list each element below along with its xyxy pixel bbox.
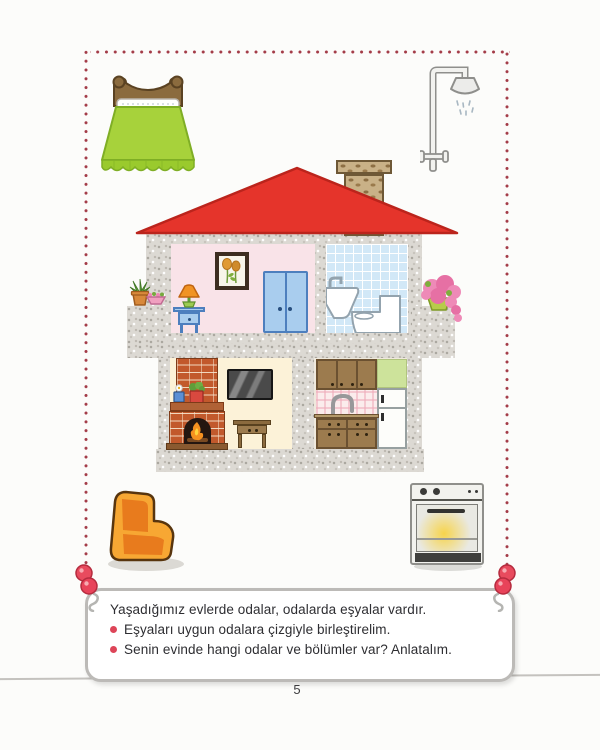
wardrobe-knob bbox=[288, 307, 292, 311]
washbasin-faucet-icon bbox=[330, 278, 341, 288]
berry-decoration-left bbox=[72, 562, 104, 612]
house-floor-slab bbox=[127, 344, 455, 358]
instruction-bullet-1: Eşyaları uygun odalara çizgiyle birleşti… bbox=[124, 622, 390, 637]
pink-flower-bowl bbox=[146, 291, 166, 306]
mantel-plants bbox=[172, 382, 206, 404]
wall-tv bbox=[227, 369, 273, 400]
bed-post-knob bbox=[114, 77, 125, 88]
console-table-leg bbox=[262, 434, 266, 448]
fireplace-hearth bbox=[166, 443, 228, 450]
swirl-icon bbox=[90, 594, 98, 611]
water-drops bbox=[457, 101, 473, 115]
armchair-seat-cushion bbox=[123, 534, 164, 555]
oven-door bbox=[416, 504, 478, 552]
toilet-seat bbox=[355, 313, 373, 319]
dotted-border-top bbox=[90, 49, 510, 55]
instruction-bullet-2: Senin evinde hangi odalar ve bölümler va… bbox=[124, 642, 452, 657]
kitchen-lower-cabinets bbox=[316, 418, 377, 449]
console-table-drawer bbox=[237, 425, 267, 434]
console-table-leg bbox=[238, 434, 242, 448]
oven-illustration bbox=[410, 483, 484, 565]
oven-base bbox=[415, 553, 481, 562]
bed-illustration bbox=[100, 73, 196, 178]
swirl-icon bbox=[494, 594, 502, 611]
bullet-icon bbox=[110, 646, 117, 653]
lamp-shade bbox=[179, 285, 199, 297]
dotted-border-left bbox=[83, 49, 89, 566]
kitchen-green-panel bbox=[377, 359, 407, 388]
room-bathroom bbox=[326, 244, 408, 333]
framed-picture bbox=[215, 252, 249, 290]
bed-blanket bbox=[102, 107, 194, 160]
shower-head-icon bbox=[451, 78, 479, 94]
oven-control-panel bbox=[412, 485, 482, 501]
oven-knob bbox=[433, 488, 440, 495]
fridge-handle bbox=[381, 413, 384, 421]
shower-handle bbox=[420, 151, 424, 162]
fireplace-opening bbox=[184, 418, 211, 444]
oven-knob bbox=[420, 488, 427, 495]
dotted-border-right bbox=[504, 49, 510, 587]
armchair-illustration bbox=[102, 485, 186, 573]
house-foundation bbox=[156, 449, 424, 472]
wardrobe-knob bbox=[278, 307, 282, 311]
nightstand-leg bbox=[195, 325, 198, 333]
nightstand-leg bbox=[180, 325, 183, 333]
table-lamp bbox=[177, 284, 201, 308]
nightstand-drawer bbox=[178, 312, 200, 325]
bougainvillea-plant bbox=[418, 272, 462, 326]
armchair-back-cushion bbox=[122, 499, 148, 532]
instruction-box: Yaşadığımız evlerde odalar, odalarda eşy… bbox=[85, 588, 515, 682]
page-number: 5 bbox=[0, 682, 594, 697]
fridge-handle bbox=[381, 395, 384, 403]
bed-post-knob bbox=[172, 77, 183, 88]
shower-illustration bbox=[420, 60, 490, 174]
roof bbox=[135, 166, 459, 236]
berry-decoration-right bbox=[486, 562, 518, 612]
instruction-intro: Yaşadığımız evlerde odalar, odalarda eşy… bbox=[110, 602, 496, 617]
oven-door-handle bbox=[427, 509, 465, 513]
picture-flowers bbox=[219, 256, 245, 286]
bullet-icon bbox=[110, 626, 117, 633]
kitchen-upper-cabinets bbox=[316, 359, 377, 390]
workbook-page: Yaşadığımız evlerde odalar, odalarda eşy… bbox=[0, 0, 600, 750]
refrigerator bbox=[377, 388, 407, 449]
fireplace-mantel bbox=[170, 402, 224, 411]
fire-icon bbox=[184, 418, 211, 444]
shower-handle bbox=[443, 151, 448, 162]
wardrobe bbox=[263, 271, 308, 333]
